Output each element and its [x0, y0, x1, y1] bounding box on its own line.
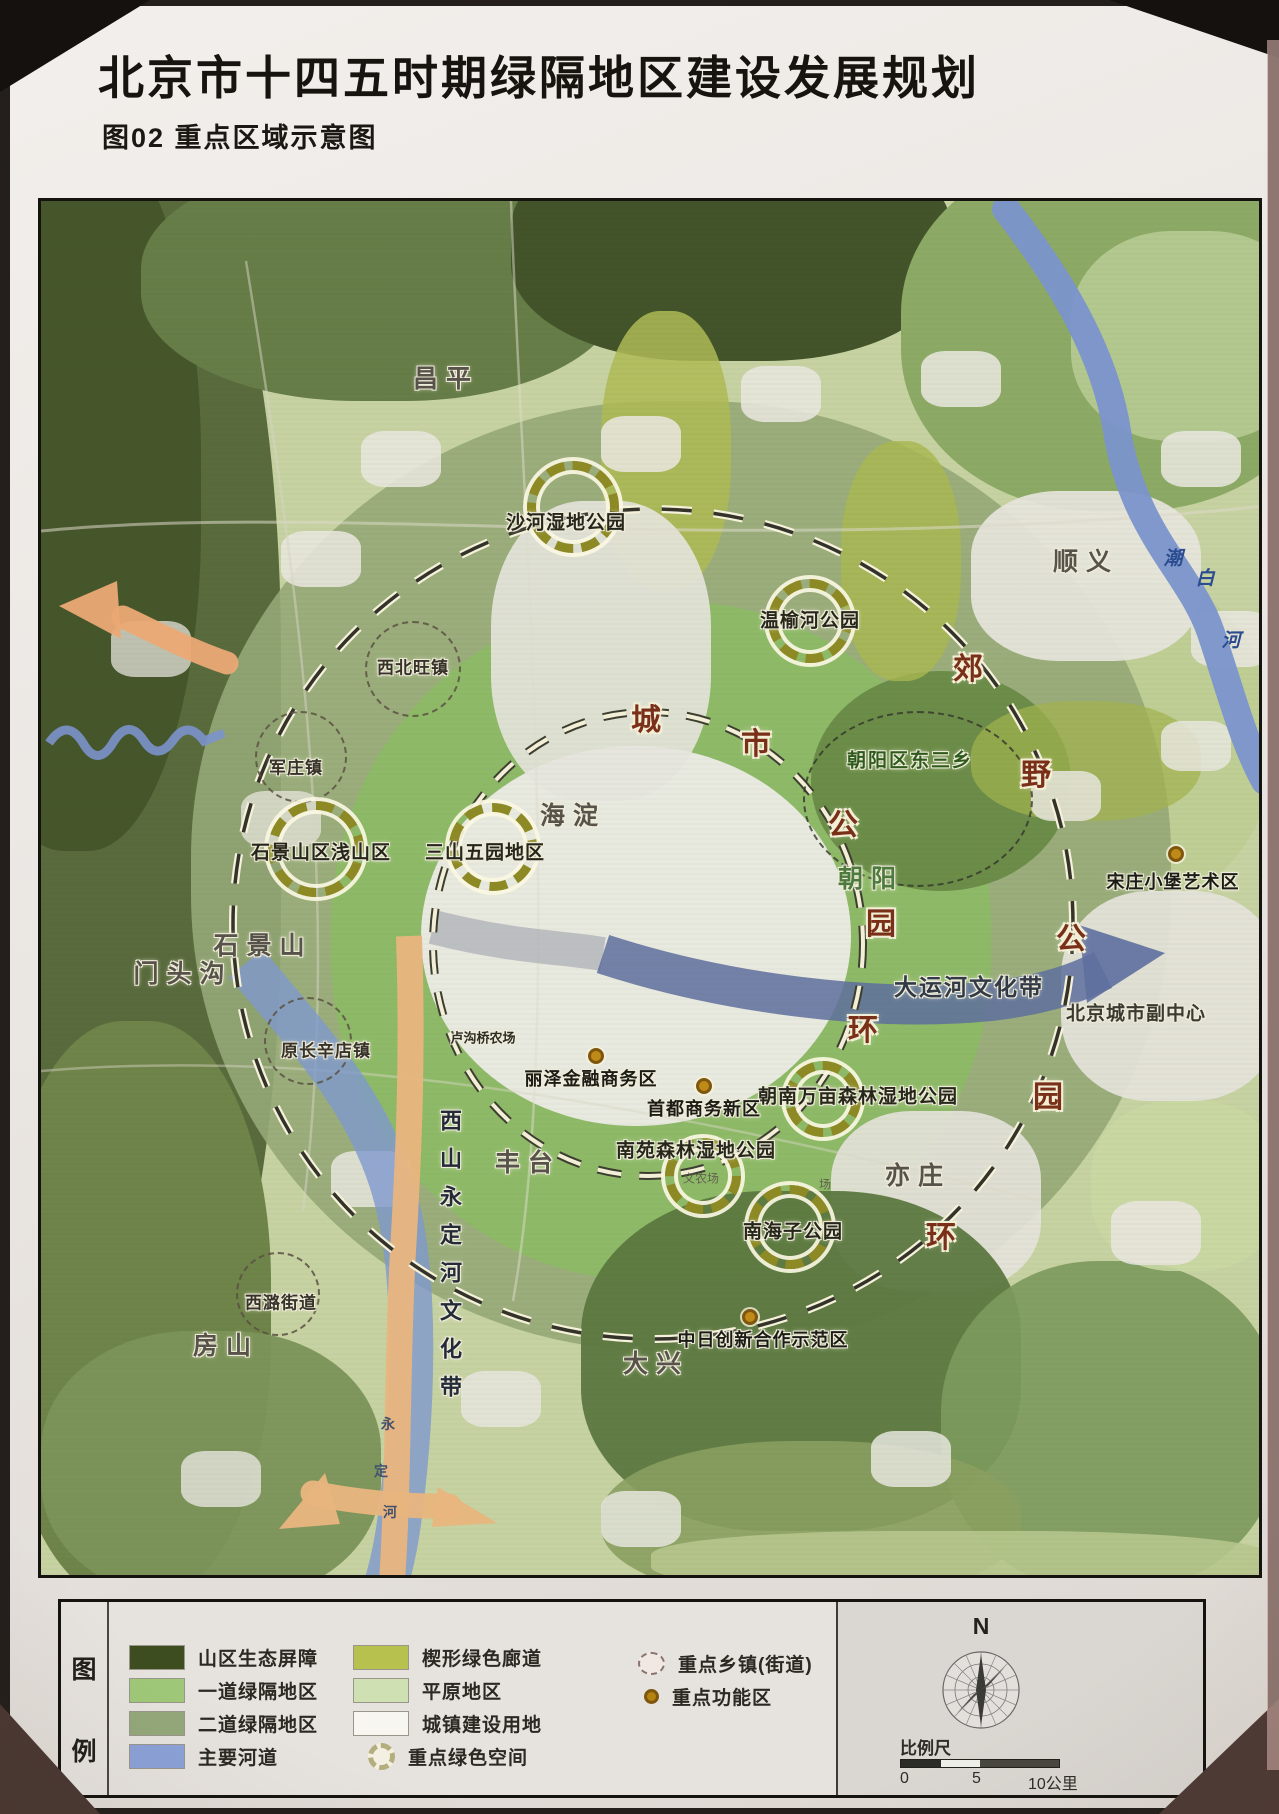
scale-tick: 0 [900, 1770, 909, 1788]
map-label: 永 [381, 1414, 395, 1434]
legend-key-bottom: 例 [71, 1732, 96, 1768]
legend-item-label: 重点绿色空间 [408, 1743, 528, 1770]
map-label: 义农场 [683, 1170, 719, 1187]
map-label: 园 [1033, 1072, 1063, 1116]
legend-item: 重点功能区 [623, 1683, 813, 1709]
scale-bar-segment [901, 1760, 941, 1767]
map-label: 丽泽金融商务区 [525, 1065, 658, 1091]
page-subtitle: 图02 重点区域示意图 [102, 116, 378, 155]
legend-item: 一道绿隔地区 [129, 1677, 318, 1703]
scale-ticks: 0510公里 [900, 1770, 1060, 1790]
scale-bar [900, 1759, 1060, 1768]
map-label: 公 [828, 800, 858, 844]
map-label: 卢沟桥农场 [450, 1028, 515, 1047]
map-label: 中日创新合作示范区 [678, 1326, 849, 1352]
map-label: 西山永定河文化带 [433, 1109, 465, 1413]
legend-item: 主要河道 [129, 1743, 318, 1769]
legend-item: 山区生态屏障 [129, 1644, 318, 1670]
map-label: 南海子公园 [743, 1217, 843, 1244]
scale-bar-segment [980, 1760, 1059, 1767]
legend-item-label: 二道绿隔地区 [198, 1710, 318, 1737]
photographed-plan-sheet: 北京市十四五时期绿隔地区建设发展规划 图02 重点区域示意图 [0, 0, 1279, 1814]
legend-swatch [353, 1678, 409, 1703]
map-label: 河 [383, 1502, 397, 1522]
legend-swatch [353, 1711, 409, 1736]
legend-item-label: 重点乡镇(街道) [678, 1650, 813, 1677]
legend-swatch [129, 1711, 185, 1736]
photo-edge [1267, 40, 1279, 1770]
map-label: 环 [926, 1212, 956, 1256]
key-function-dot [1168, 846, 1184, 862]
page-title: 北京市十四五时期绿隔地区建设发展规划 [98, 42, 980, 108]
green-space-ring-icon [368, 1743, 395, 1770]
map-label: 朝阳区东三乡 [847, 746, 973, 773]
legend-swatch [129, 1645, 185, 1670]
map-label: 定 [374, 1461, 388, 1481]
legend-item: 平原地区 [353, 1677, 542, 1703]
town-circle-icon [638, 1652, 665, 1675]
key-function-dot [696, 1078, 712, 1094]
map-label: 温榆河公园 [760, 606, 860, 633]
legend-item: 楔形绿色廊道 [353, 1644, 542, 1670]
map-label: 环 [848, 1005, 878, 1049]
paper-sheet: 北京市十四五时期绿隔地区建设发展规划 图02 重点区域示意图 [10, 6, 1268, 1808]
map-label: 南苑森林湿地公园 [616, 1136, 776, 1163]
scale-tick: 5 [972, 1770, 981, 1788]
map-label: 城 [631, 695, 661, 739]
map-label: 顺义 [1053, 542, 1119, 578]
map-label: 朝南万亩森林湿地公园 [758, 1082, 958, 1109]
map-label: 昌平 [413, 359, 479, 395]
scale-tick: 10公里 [1028, 1770, 1078, 1794]
legend-item-label: 重点功能区 [672, 1683, 772, 1710]
map-label: 石景山区浅山区 [251, 838, 391, 865]
map-label: 郊 [953, 644, 983, 688]
legend-item: 重点绿色空间 [353, 1743, 542, 1769]
map-label: 海淀 [540, 796, 606, 832]
map-label: 市 [741, 719, 771, 763]
compass-north-label: N [973, 1613, 990, 1639]
key-function-dot [742, 1309, 758, 1325]
map-label: 西潞街道 [245, 1289, 317, 1314]
compass-rose: N [926, 1610, 1036, 1736]
map-label: 潮 [1163, 544, 1182, 571]
legend-key-top: 图 [71, 1650, 96, 1686]
map-label: 丰台 [495, 1143, 561, 1179]
map-label: 门头沟 [133, 954, 232, 990]
map-label: 首都商务新区 [647, 1095, 761, 1121]
legend-item-label: 一道绿隔地区 [198, 1677, 318, 1704]
legend-column: 重点乡镇(街道)重点功能区 [623, 1650, 813, 1716]
map-label: 场 [819, 1176, 831, 1193]
legend-swatch [129, 1744, 185, 1769]
map-label: 三山五园地区 [425, 838, 545, 865]
legend-swatch [353, 1645, 409, 1670]
legend-column: 楔形绿色廊道平原地区城镇建设用地重点绿色空间 [353, 1644, 542, 1776]
map-label: 大运河文化带 [894, 968, 1044, 1002]
map-label: 房山 [193, 1326, 259, 1362]
map-label: 西北旺镇 [377, 654, 449, 679]
legend-item: 重点乡镇(街道) [623, 1650, 813, 1676]
legend-item-label: 城镇建设用地 [422, 1710, 542, 1737]
legend-column: 山区生态屏障一道绿隔地区二道绿隔地区主要河道 [129, 1644, 318, 1776]
map-label: 军庄镇 [269, 754, 323, 779]
legend: 图 例 山区生态屏障一道绿隔地区二道绿隔地区主要河道楔形绿色廊道平原地区城镇建设… [58, 1599, 1206, 1798]
legend-item-label: 平原地区 [422, 1677, 502, 1704]
map-label: 园 [866, 899, 896, 943]
legend-item-label: 主要河道 [198, 1743, 278, 1770]
map-label: 白 [1195, 564, 1214, 591]
scale-bar-segment [941, 1760, 981, 1767]
legend-swatch [129, 1678, 185, 1703]
key-function-dot [588, 1048, 604, 1064]
map-label: 原长辛店镇 [281, 1037, 371, 1062]
function-dot-icon [644, 1689, 659, 1704]
map-label: 河 [1221, 626, 1240, 653]
map-label: 亦庄 [885, 1156, 951, 1192]
legend-item-label: 楔形绿色廊道 [422, 1644, 542, 1671]
map: 昌平顺义海淀石景山门头沟丰台房山大兴亦庄朝阳北京城市副中心大运河文化带朝阳区东三… [38, 198, 1262, 1578]
map-label: 宋庄小堡艺术区 [1107, 868, 1240, 894]
scale-label: 比例尺 [900, 1734, 951, 1759]
legend-item: 城镇建设用地 [353, 1710, 542, 1736]
legend-item-label: 山区生态屏障 [198, 1644, 318, 1671]
legend-right-panel: N 比例尺 [836, 1602, 1203, 1795]
map-label: 公 [1056, 914, 1086, 958]
map-label: 朝阳 [838, 859, 904, 895]
map-label: 野 [1021, 750, 1051, 794]
map-label: 北京城市副中心 [1066, 999, 1206, 1026]
legend-key-column: 图 例 [61, 1602, 109, 1795]
map-label: 沙河湿地公园 [506, 508, 626, 535]
map-annotations: 昌平顺义海淀石景山门头沟丰台房山大兴亦庄朝阳北京城市副中心大运河文化带朝阳区东三… [41, 201, 1259, 1575]
legend-item: 二道绿隔地区 [129, 1710, 318, 1736]
